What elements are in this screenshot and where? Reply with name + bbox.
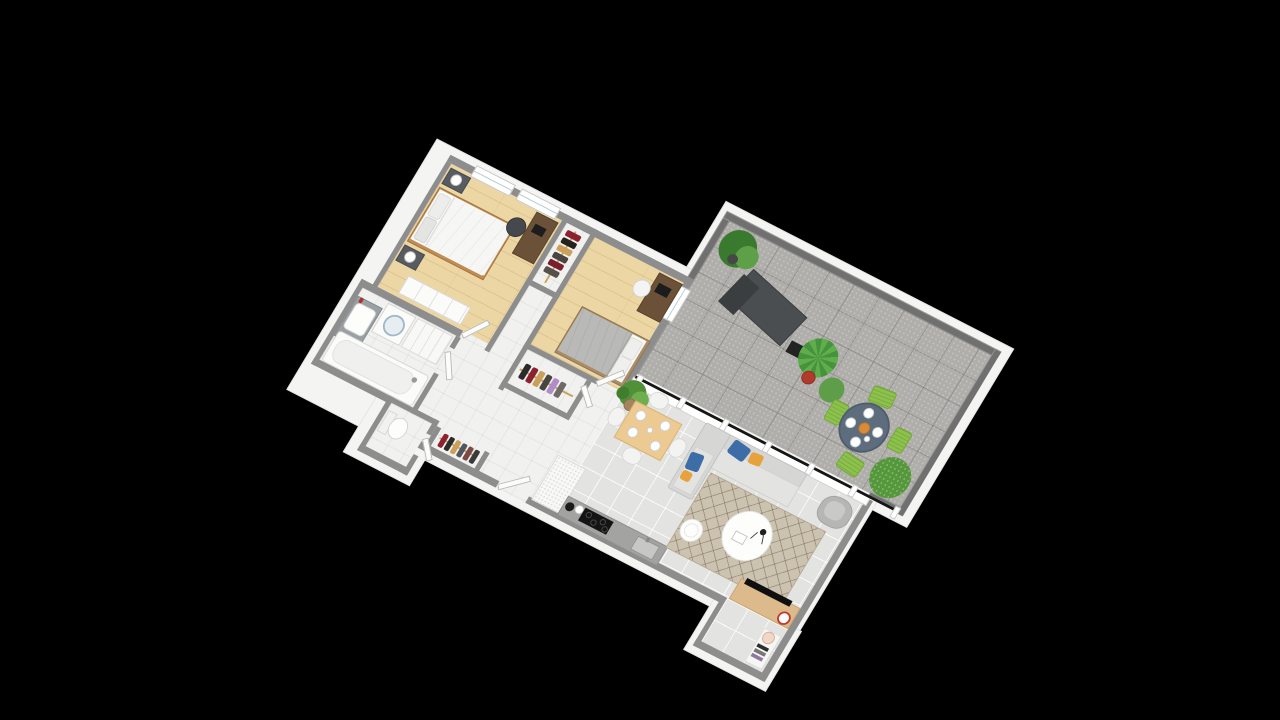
apartment-plan: hallway bedroom-1 bedroom-2 bathroom wc … <box>252 78 1014 718</box>
floor-plan-render: hallway bedroom-1 bedroom-2 bathroom wc … <box>0 0 1280 720</box>
